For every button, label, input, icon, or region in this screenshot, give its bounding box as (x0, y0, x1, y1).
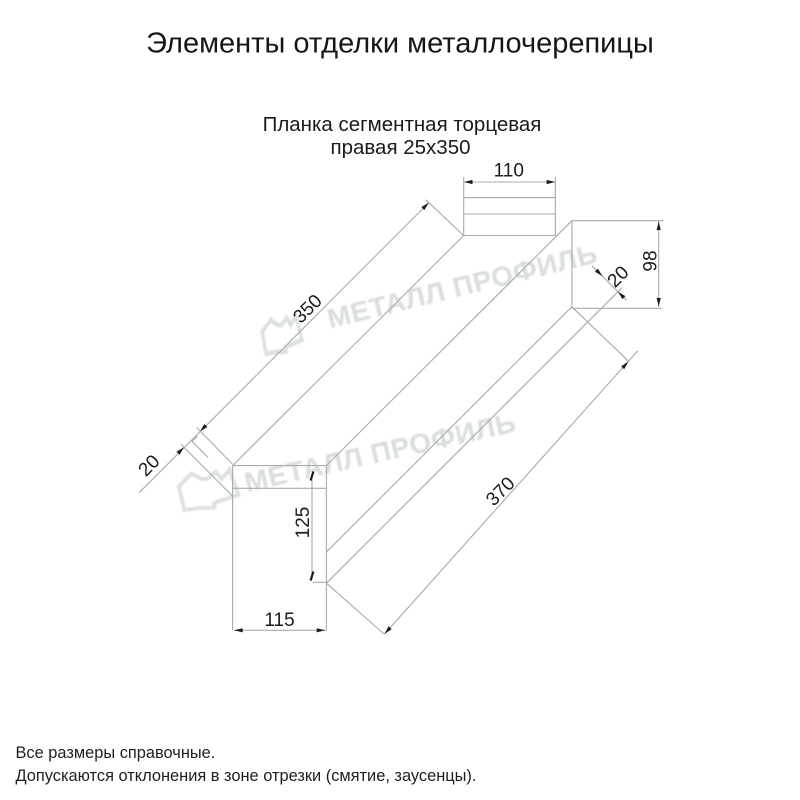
svg-text:350: 350 (289, 291, 326, 328)
svg-text:20: 20 (604, 262, 634, 292)
svg-text:Планка сегментная торцевая: Планка сегментная торцевая (263, 113, 542, 136)
svg-text:Допускаются отклонения в зоне: Допускаются отклонения в зоне отрезки (с… (16, 767, 477, 785)
svg-text:125: 125 (293, 507, 314, 539)
svg-text:МЕТАЛЛ ПРОФИЛЬ: МЕТАЛЛ ПРОФИЛЬ (242, 407, 519, 498)
svg-text:20: 20 (135, 451, 165, 481)
svg-text:Элементы отделки металлочерепи: Элементы отделки металлочерепицы (146, 28, 654, 60)
svg-text:115: 115 (264, 610, 294, 631)
svg-text:98: 98 (641, 250, 662, 271)
svg-text:Все размеры справочные.: Все размеры справочные. (16, 744, 216, 762)
svg-text:370: 370 (482, 473, 519, 510)
svg-text:правая 25х350: правая 25х350 (330, 136, 470, 159)
svg-text:110: 110 (494, 161, 524, 182)
